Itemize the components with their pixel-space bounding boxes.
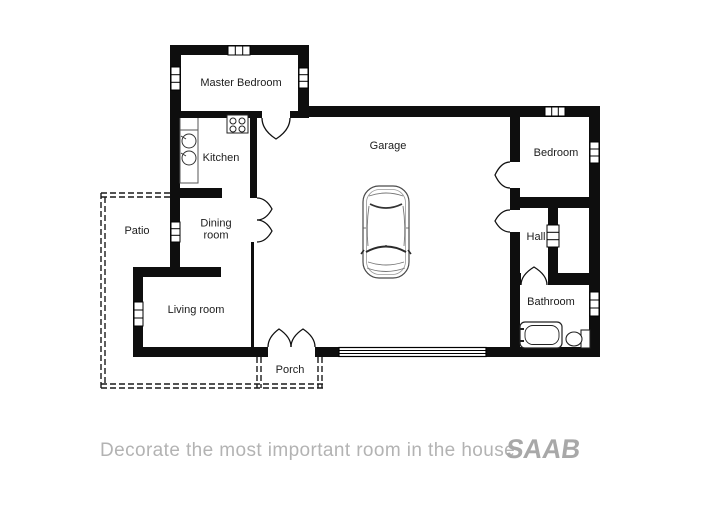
room-label-garage: Garage <box>370 141 407 153</box>
room-label-hall: Hall <box>527 232 546 244</box>
room-label-patio: Patio <box>124 226 149 238</box>
wall <box>170 188 222 198</box>
wall <box>548 273 600 285</box>
window-icon <box>545 107 565 116</box>
wall <box>510 197 600 208</box>
wall <box>133 347 268 357</box>
door-porch-1 <box>268 329 291 347</box>
room-label-bedroom: Bedroom <box>534 148 579 160</box>
room-label-master-bedroom: Master Bedroom <box>200 78 281 90</box>
wall <box>510 106 520 162</box>
car-icon <box>361 186 411 278</box>
wall <box>510 273 521 285</box>
wall <box>510 232 520 347</box>
bathtub-icon <box>520 322 562 348</box>
window-icon <box>299 68 308 88</box>
wall <box>250 118 257 198</box>
window-icon <box>134 302 143 326</box>
door-porch-2 <box>291 329 315 347</box>
floor-plan <box>0 0 720 507</box>
wall <box>290 111 309 118</box>
wall <box>133 267 221 277</box>
door-dining-french-1 <box>257 198 272 220</box>
window-icon <box>171 222 180 242</box>
window-icon <box>228 46 250 55</box>
toilet-icon <box>566 330 590 348</box>
door-master-bedroom <box>262 118 290 139</box>
room-label-bathroom: Bathroom <box>527 297 575 309</box>
ad-tagline: Decorate the most important room in the … <box>100 440 515 462</box>
saab-logo: SAAB <box>504 434 583 465</box>
window-icon <box>590 142 599 163</box>
window-icon <box>590 292 599 316</box>
door-bedroom <box>495 162 510 188</box>
room-label-porch: Porch <box>276 365 305 377</box>
wall <box>315 347 339 357</box>
advertisement-page: Master Bedroom Kitchen Dining room Patio… <box>0 0 720 507</box>
stove-icon <box>227 115 248 133</box>
sink-icon <box>181 134 196 165</box>
room-label-dining-room: Dining room <box>192 218 240 241</box>
window-icon <box>547 225 559 247</box>
door-hall <box>495 210 510 232</box>
wall-thin <box>251 242 254 347</box>
door-dining-french-2 <box>257 220 272 242</box>
room-label-living-room: Living room <box>168 305 225 317</box>
window-icon <box>171 67 180 90</box>
garage-door <box>339 348 486 357</box>
door-bathroom <box>521 267 547 285</box>
room-label-kitchen: Kitchen <box>203 153 240 165</box>
